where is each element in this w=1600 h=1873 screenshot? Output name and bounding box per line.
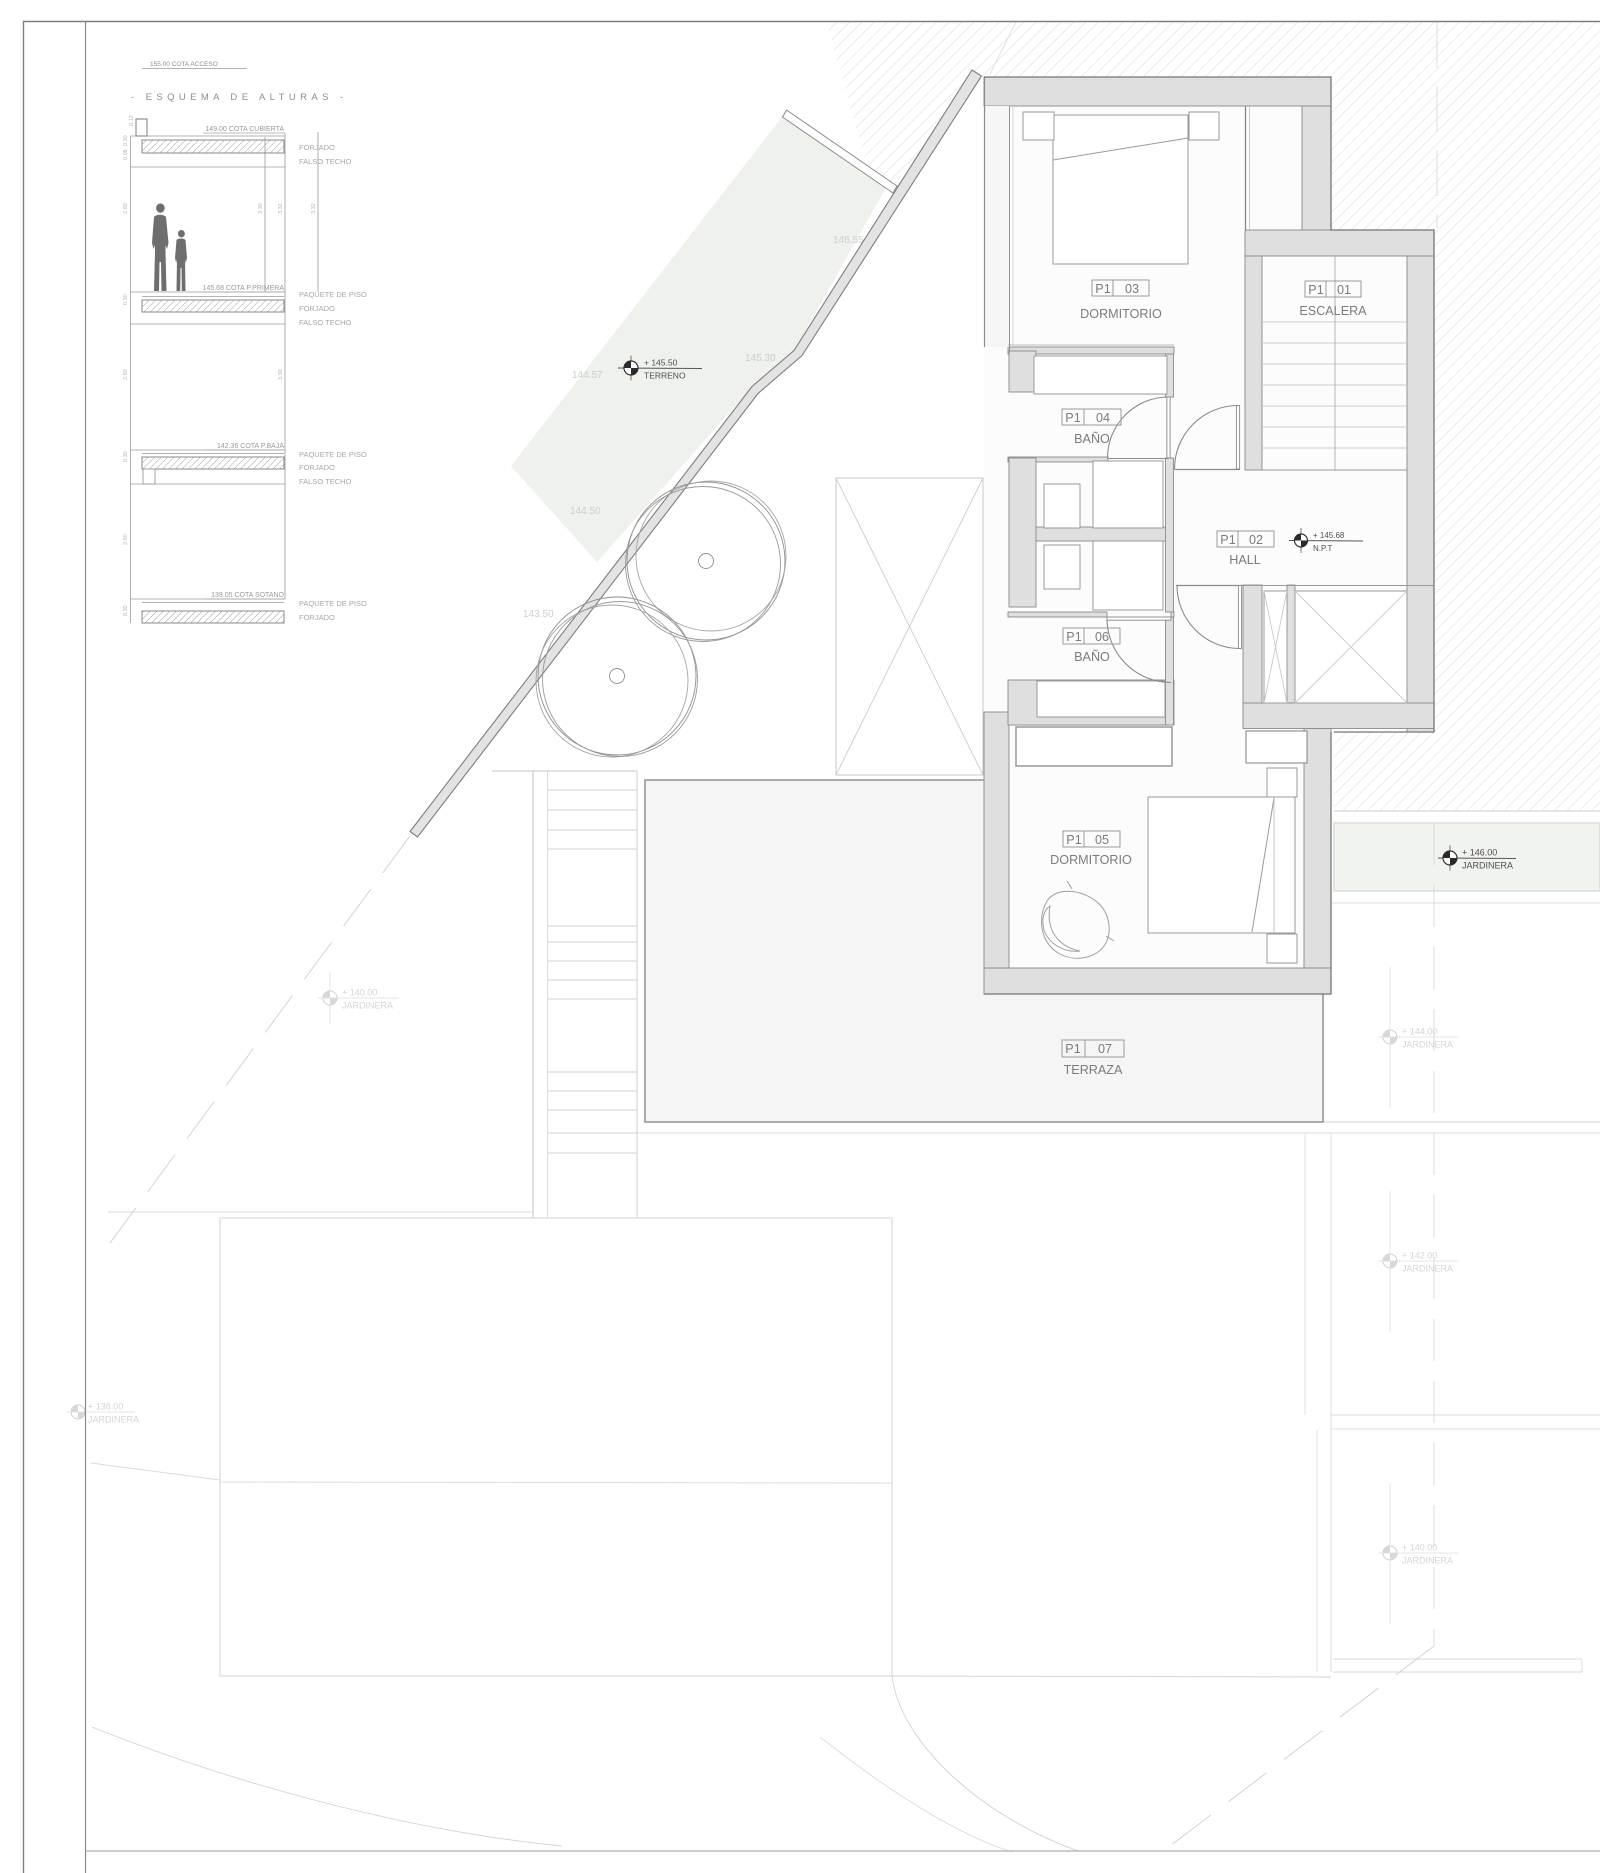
svg-text:3.32: 3.32 bbox=[311, 203, 317, 214]
svg-text:+ 142.00: + 142.00 bbox=[1402, 1251, 1437, 1261]
svg-text:JARDINERA: JARDINERA bbox=[342, 1001, 393, 1011]
svg-text:BAÑO: BAÑO bbox=[1074, 650, 1110, 664]
svg-text:0.12: 0.12 bbox=[129, 115, 135, 126]
svg-text:PAQUETE DE PISO: PAQUETE DE PISO bbox=[299, 450, 367, 459]
svg-text:+ 140.00: + 140.00 bbox=[342, 988, 377, 998]
svg-text:FALSO TECHO: FALSO TECHO bbox=[299, 157, 352, 166]
svg-text:0.30: 0.30 bbox=[123, 605, 129, 616]
svg-text:3.30: 3.30 bbox=[258, 203, 264, 214]
svg-text:3.32: 3.32 bbox=[278, 203, 284, 214]
svg-text:144.50: 144.50 bbox=[570, 506, 601, 517]
svg-text:142.36 COTA P.BAJA: 142.36 COTA P.BAJA bbox=[217, 443, 284, 450]
svg-text:ESCALERA: ESCALERA bbox=[1299, 304, 1367, 318]
svg-text:0.30: 0.30 bbox=[123, 294, 129, 305]
svg-text:P1: P1 bbox=[1308, 283, 1323, 297]
svg-text:03: 03 bbox=[1125, 282, 1139, 296]
svg-text:145.30: 145.30 bbox=[745, 353, 776, 364]
svg-text:+ 144.00: + 144.00 bbox=[1402, 1027, 1437, 1037]
svg-text:FALSO TECHO: FALSO TECHO bbox=[299, 477, 352, 486]
svg-text:04: 04 bbox=[1096, 411, 1110, 425]
svg-text:BAÑO: BAÑO bbox=[1074, 432, 1110, 446]
svg-text:FORJADO: FORJADO bbox=[299, 304, 335, 313]
svg-text:146.55: 146.55 bbox=[833, 235, 864, 246]
svg-text:+ 145.50: + 145.50 bbox=[644, 358, 678, 368]
svg-text:DORMITORIO: DORMITORIO bbox=[1080, 307, 1162, 321]
svg-text:P1: P1 bbox=[1065, 411, 1080, 425]
svg-text:2.60: 2.60 bbox=[123, 203, 129, 214]
svg-text:0.30: 0.30 bbox=[123, 451, 129, 462]
svg-text:DORMITORIO: DORMITORIO bbox=[1050, 853, 1132, 867]
svg-text:HALL: HALL bbox=[1229, 553, 1261, 567]
svg-text:+ 138.00: + 138.00 bbox=[88, 1402, 123, 1412]
svg-text:145.68 COTA P.PRIMERA: 145.68 COTA P.PRIMERA bbox=[203, 285, 285, 292]
svg-text:N.P.T: N.P.T bbox=[1313, 544, 1333, 553]
svg-text:P1: P1 bbox=[1066, 630, 1081, 644]
svg-text:JARDINERA: JARDINERA bbox=[88, 1415, 139, 1425]
svg-text:TERRENO: TERRENO bbox=[644, 371, 686, 381]
svg-text:JARDINERA: JARDINERA bbox=[1402, 1040, 1453, 1050]
svg-text:155.00 COTA ACCESO: 155.00 COTA ACCESO bbox=[150, 61, 218, 68]
svg-text:3.30: 3.30 bbox=[278, 369, 284, 380]
svg-text:FORJADO: FORJADO bbox=[299, 613, 335, 622]
svg-text:P1: P1 bbox=[1220, 533, 1235, 547]
svg-text:JARDINERA: JARDINERA bbox=[1402, 1264, 1453, 1274]
svg-text:139.05 COTA SOTANO: 139.05 COTA SOTANO bbox=[211, 592, 284, 599]
svg-text:JARDINERA: JARDINERA bbox=[1462, 861, 1513, 871]
svg-text:2.60: 2.60 bbox=[123, 534, 129, 545]
svg-text:- ESQUEMA DE ALTURAS -: - ESQUEMA DE ALTURAS - bbox=[131, 92, 347, 103]
svg-text:02: 02 bbox=[1249, 533, 1263, 547]
svg-text:FALSO TECHO: FALSO TECHO bbox=[299, 318, 352, 327]
svg-text:144.57: 144.57 bbox=[572, 370, 603, 381]
svg-text:+ 145.68: + 145.68 bbox=[1313, 531, 1345, 540]
svg-text:P1: P1 bbox=[1095, 282, 1110, 296]
svg-text:143.50: 143.50 bbox=[523, 609, 554, 620]
svg-text:06: 06 bbox=[1095, 630, 1109, 644]
svg-text:05: 05 bbox=[1095, 833, 1109, 847]
svg-text:JARDINERA: JARDINERA bbox=[1402, 1556, 1453, 1566]
svg-text:PAQUETE DE PISO: PAQUETE DE PISO bbox=[299, 290, 367, 299]
svg-text:P1: P1 bbox=[1066, 833, 1081, 847]
svg-text:FORJADO: FORJADO bbox=[299, 143, 335, 152]
svg-text:+ 140.00: + 140.00 bbox=[1402, 1543, 1437, 1553]
svg-text:149.00 COTA CUBIERTA: 149.00 COTA CUBIERTA bbox=[205, 126, 284, 133]
svg-text:07: 07 bbox=[1098, 1042, 1112, 1056]
svg-text:+ 146.00: + 146.00 bbox=[1462, 848, 1497, 858]
svg-text:2.60: 2.60 bbox=[123, 369, 129, 380]
svg-text:P1: P1 bbox=[1065, 1042, 1080, 1056]
svg-text:PAQUETE DE PISO: PAQUETE DE PISO bbox=[299, 599, 367, 608]
svg-text:01: 01 bbox=[1337, 283, 1351, 297]
svg-text:TERRAZA: TERRAZA bbox=[1064, 1063, 1123, 1077]
svg-text:0.30: 0.30 bbox=[123, 135, 129, 146]
svg-text:0.06: 0.06 bbox=[123, 149, 129, 160]
svg-text:FORJADO: FORJADO bbox=[299, 463, 335, 472]
